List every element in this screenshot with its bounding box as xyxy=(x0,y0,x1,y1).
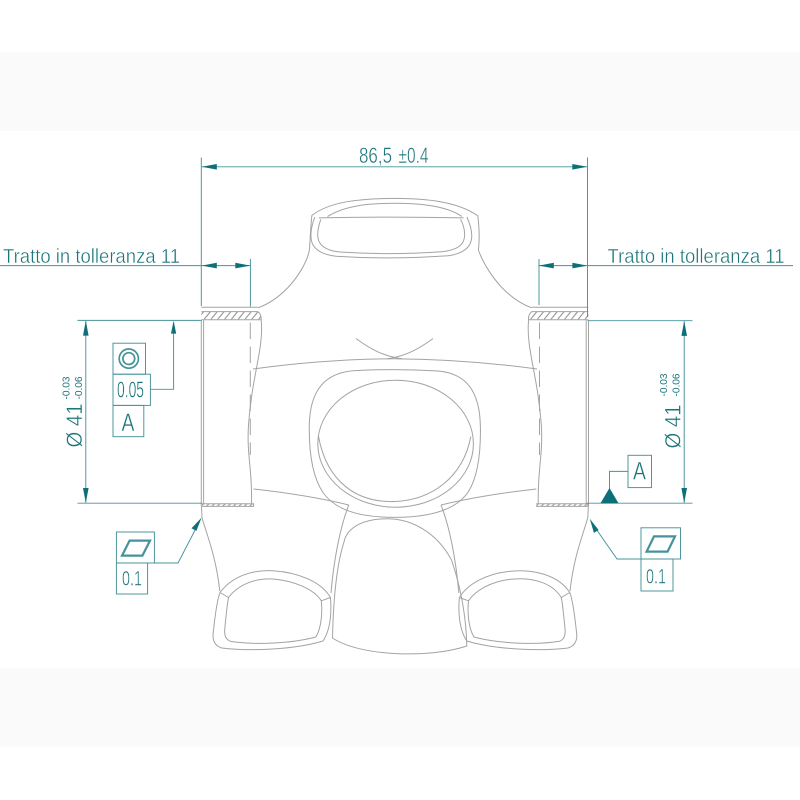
svg-text:±0.4: ±0.4 xyxy=(399,143,429,168)
svg-text:-0.03: -0.03 xyxy=(62,376,73,399)
svg-text:A: A xyxy=(633,458,646,486)
svg-text:Ø 41: Ø 41 xyxy=(661,405,686,449)
svg-text:0.05: 0.05 xyxy=(117,377,144,403)
svg-text:Tratto in tolleranza 11: Tratto in tolleranza 11 xyxy=(3,245,180,268)
svg-text:A: A xyxy=(122,409,135,437)
svg-text:0.1: 0.1 xyxy=(646,566,666,589)
svg-text:Tratto in tolleranza 11: Tratto in tolleranza 11 xyxy=(608,245,785,268)
svg-text:0.1: 0.1 xyxy=(122,568,142,591)
svg-text:-0.06: -0.06 xyxy=(672,373,683,396)
svg-text:Ø 41: Ø 41 xyxy=(62,404,87,448)
svg-text:-0.06: -0.06 xyxy=(74,376,85,399)
svg-text:-0.03: -0.03 xyxy=(659,373,670,396)
svg-text:86,5: 86,5 xyxy=(359,143,392,168)
